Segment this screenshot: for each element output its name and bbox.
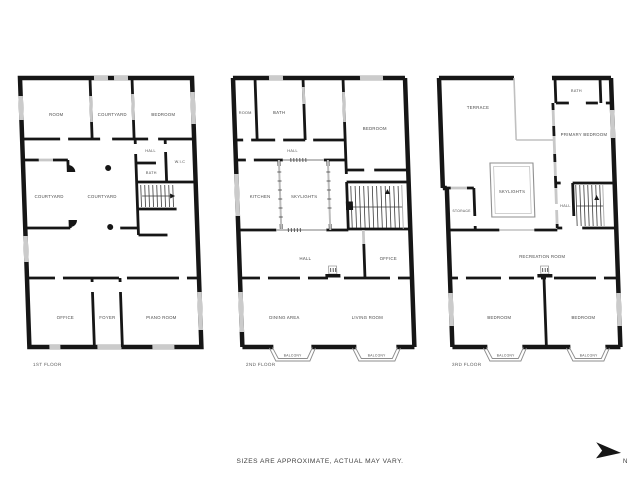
- floor-label-2nd: 2ND FLOOR: [246, 362, 276, 367]
- room-label-hall-upper-2nd: HALL: [287, 149, 298, 153]
- room-label-recreation-room-3rd: RECREATION ROOM: [519, 254, 565, 259]
- room-label-courtyard-top-1st: COURTYARD: [98, 112, 127, 117]
- room-label-balcony-left-2nd: BALCONY: [284, 354, 303, 358]
- floor-plan-3rd-floor: TERRACE BATH PRIMARY BEDROOM SKYLIGHTS S…: [433, 72, 633, 372]
- room-label-balcony-right-2nd: BALCONY: [368, 354, 387, 358]
- room-label-skylights-3rd: SKYLIGHTS: [499, 189, 526, 194]
- floor-label-3rd: 3RD FLOOR: [452, 362, 482, 367]
- stairs-2nd-floor: [345, 185, 403, 229]
- room-label-hall-3rd: HALL: [560, 204, 571, 208]
- room-label-bath-1st: BATH: [146, 171, 157, 175]
- room-label-office-2nd: OFFICE: [380, 256, 397, 261]
- room-label-courtyard-left-1st: COURTYARD: [35, 194, 64, 199]
- room-label-bath-2nd: BATH: [273, 110, 285, 115]
- room-label-bath-3rd: BATH: [571, 89, 582, 93]
- floor-label-1st: 1ST FLOOR: [33, 362, 62, 367]
- room-label-piano-room-1st: PIANO ROOM: [146, 315, 177, 320]
- room-label-hall-1st: HALL: [145, 149, 156, 153]
- room-label-bedroom-left-3rd: BEDROOM: [487, 315, 511, 320]
- room-label-balcony-right-3rd: BALCONY: [580, 354, 599, 358]
- room-label-hall-lower-2nd: HALL: [299, 256, 311, 261]
- floorplan-sheet: { "canvas": { "background": "#ffffff", "…: [0, 0, 640, 480]
- room-label-primary-bedroom-3rd: PRIMARY BEDROOM: [561, 132, 608, 137]
- room-label-office-1st: OFFICE: [57, 315, 74, 320]
- room-label-storage-3rd: STORAGE: [452, 209, 471, 213]
- walls-1st-floor: [20, 78, 201, 347]
- fireplace-symbol-2nd: [325, 266, 340, 278]
- room-label-bedroom-1st: BEDROOM: [151, 112, 175, 117]
- room-label-skylights-2nd: SKYLIGHTS: [291, 194, 318, 199]
- stairs-direction-arrow: [594, 195, 599, 200]
- room-label-courtyard-center-1st: COURTYARD: [88, 194, 117, 199]
- stairs-3rd-floor: [576, 185, 604, 226]
- room-label-bedroom-right-3rd: BEDROOM: [571, 315, 595, 320]
- room-label-living-room-2nd: LIVING ROOM: [352, 315, 384, 320]
- north-arrow-icon: N: [590, 436, 636, 470]
- north-arrow-shape: [594, 442, 622, 461]
- room-label-terrace-3rd: TERRACE: [467, 105, 489, 110]
- room-label-foyer-1st: FOYER: [99, 315, 115, 320]
- north-label: N: [623, 459, 627, 465]
- room-label-bedroom-2nd: BEDROOM: [363, 126, 387, 131]
- room-label-room-1st: ROOM: [49, 112, 64, 117]
- room-label-balcony-left-3rd: BALCONY: [497, 354, 516, 358]
- sizes-disclaimer: SIZES ARE APPROXIMATE, ACTUAL MAY VARY.: [0, 458, 640, 465]
- stairs-1st-floor: [141, 185, 176, 207]
- walls-2nd-floor: [233, 78, 414, 347]
- stair-newel: [346, 202, 353, 211]
- floor-plan-2nd-floor: ROOM BATH BEDROOM HALL KITCHEN SKYLIGHTS…: [227, 72, 427, 372]
- room-label-dining-area-2nd: DINING AREA: [269, 315, 300, 320]
- room-label-kitchen-2nd: KITCHEN: [250, 194, 271, 199]
- room-label-room-2nd: ROOM: [239, 111, 252, 115]
- floor-plan-1st-floor: ROOM COURTYARD BEDROOM HALL W.I.C BATH C…: [14, 72, 214, 372]
- fireplace-symbol-3rd: [537, 266, 552, 278]
- room-label-wic-1st: W.I.C: [175, 160, 186, 164]
- stairs-direction-arrow: [170, 194, 175, 199]
